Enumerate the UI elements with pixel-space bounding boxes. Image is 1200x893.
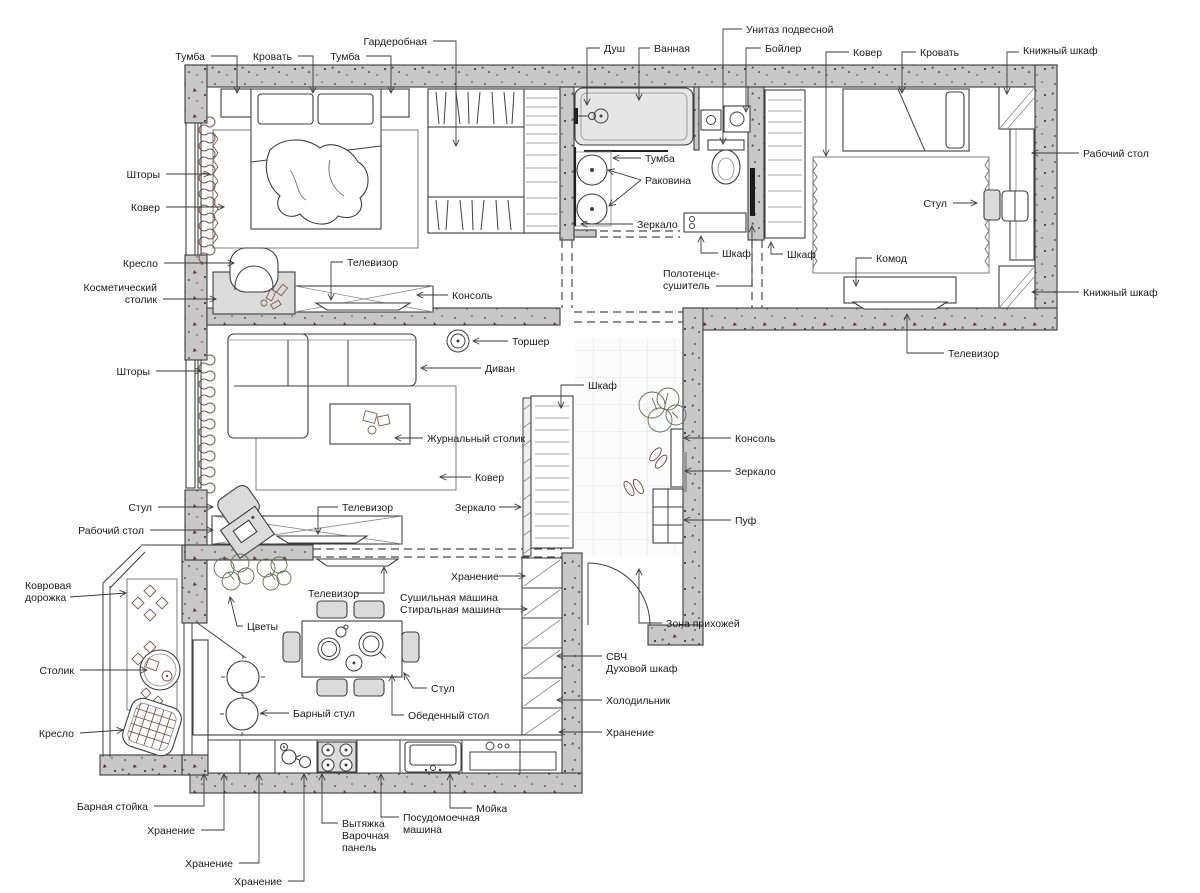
leader-line-flowers <box>230 597 243 626</box>
plan-label-vanity-b1: Косметическийстолик <box>84 282 158 306</box>
plan-label-storage-k1: Хранение <box>451 571 499 583</box>
plan-label-chair-balc: Кресло <box>39 728 74 740</box>
plan-label-cabinet-bath: Шкаф <box>722 248 751 260</box>
storage-column <box>522 558 562 737</box>
wall-left-a <box>185 65 207 123</box>
plan-label-rug-b2: Ковер <box>853 47 882 59</box>
runner-shape <box>127 579 177 710</box>
wardrobe-room <box>428 89 560 233</box>
plan-label-toilet: Унитаз подвесной <box>746 24 834 36</box>
plan-label-console-b1: Консоль <box>452 290 493 302</box>
plan-label-dining-table: Обеденный стол <box>408 710 489 722</box>
window-living <box>186 360 195 488</box>
kitchen-dining <box>193 554 562 773</box>
plan-label-rug-lv: Ковер <box>475 472 504 484</box>
plan-label-nightstand-right-b1: Тумба <box>330 51 360 63</box>
plan-label-chair-b2: Стул <box>923 198 947 210</box>
balcony <box>103 545 192 759</box>
plan-label-sink-bath: Раковина <box>645 175 691 187</box>
plan-label-storage-2: Хранение <box>185 858 233 870</box>
plan-label-closet-hall: Шкаф <box>588 380 617 392</box>
hall-mirror-icon <box>683 452 687 492</box>
plan-label-shower: Душ <box>604 43 625 55</box>
dining-set <box>283 601 419 696</box>
chair-bedroom2 <box>984 190 1028 221</box>
dining-table-shape <box>302 621 402 677</box>
plan-label-curtains-lv: Шторы <box>116 366 150 378</box>
leader-line-chair-dining <box>404 673 427 688</box>
pouf-shape <box>653 489 683 543</box>
wall-bath-left <box>560 87 574 240</box>
plan-label-mirror-lv: Зеркало <box>455 502 496 514</box>
nightstand-left <box>221 89 251 117</box>
plan-label-micro-oven: СВЧДуховой шкаф <box>606 651 678 675</box>
dresser-bedroom2-shape <box>844 277 956 303</box>
bookcase-bottom-icon <box>999 266 1035 308</box>
sink-icon <box>405 742 461 772</box>
bar-stools <box>220 655 265 736</box>
bathtub-shape <box>575 88 693 145</box>
floor-lamp-icon <box>447 330 469 352</box>
dining-chair <box>402 632 419 662</box>
plan-label-dishwasher: Посудомоечнаямашина <box>403 812 480 836</box>
rug-fringe-icon <box>213 132 218 244</box>
plan-label-bookcase-top-b2: Книжный шкаф <box>1023 45 1098 57</box>
leader-line-sink-bath <box>608 170 641 180</box>
wall-wing-bottom <box>683 308 1057 330</box>
bar-counter-shape <box>193 640 208 735</box>
plan-label-runner-balc: Ковроваядорожка <box>25 580 71 604</box>
plan-label-washer-dryer: Сушильная машинаСтиральная машина <box>400 592 501 616</box>
kitchen-counter <box>208 735 562 773</box>
plan-label-tv-kitchen: Телевизор <box>308 588 359 600</box>
plan-label-tv-lv: Телевизор <box>342 502 393 514</box>
plan-label-desk-b2: Рабочий стол <box>1083 148 1149 160</box>
plan-label-storage-3: Хранение <box>234 876 282 888</box>
dining-chair <box>317 601 347 618</box>
plan-label-bed-b2: Кровать <box>920 47 960 59</box>
nightstand-right <box>379 89 409 117</box>
leader-line-sink-bath <box>609 180 641 206</box>
plan-label-tv-b1: Телевизор <box>347 257 398 269</box>
plan-label-coffee-table: Журнальный столик <box>427 433 525 445</box>
armchair-bedroom1 <box>230 248 278 292</box>
floor-plan: ТумбаКроватьТумбаГардеробнаяДушВаннаяУни… <box>0 0 1200 893</box>
bath-appliance-icon <box>701 110 721 130</box>
plan-label-chair-dining: Стул <box>431 683 455 695</box>
wall-bath-bottom-stub <box>574 230 596 237</box>
plan-label-sink-kitchen: Мойка <box>476 803 507 815</box>
plan-label-entry-zone: Зона прихожей <box>666 618 740 630</box>
closet-column <box>765 90 805 238</box>
toilet-icon <box>708 140 744 184</box>
bookcase-top-icon <box>999 87 1035 129</box>
plan-label-rug-b1: Ковер <box>131 202 160 214</box>
plan-label-mirror-hall: Зеркало <box>735 466 776 478</box>
hob-icon <box>318 742 356 772</box>
dining-chair <box>317 679 347 696</box>
entry-door-icon <box>588 563 650 625</box>
plan-label-boiler: Бойлер <box>765 43 802 55</box>
plan-label-wardrobe: Гардеробная <box>363 36 427 48</box>
plan-label-floor-lamp: Торшер <box>512 336 550 348</box>
tv-bedroom2-icon <box>853 302 947 309</box>
plan-label-fridge: Холодильник <box>606 695 671 707</box>
leader-line-dining-table <box>392 675 404 715</box>
plan-label-vanity-bath: Тумба <box>645 153 675 165</box>
plan-label-bookcase-bottom-b2: Книжный шкаф <box>1083 287 1158 299</box>
leader-line-chair-balc <box>80 730 123 733</box>
plan-label-table-balc: Столик <box>40 665 75 677</box>
bed-bedroom2 <box>843 89 969 151</box>
plan-label-dresser-b2: Комод <box>876 253 907 265</box>
window-bedroom1 <box>186 123 195 255</box>
leader-line-closet-b2 <box>771 242 783 254</box>
tv-kitchen-icon <box>317 559 398 566</box>
desk-bedroom2 <box>1010 116 1034 260</box>
wall-top <box>185 65 1057 87</box>
leader-line-cabinet-bath <box>701 236 718 253</box>
wall-kitchen-bottom <box>190 773 582 793</box>
dining-chair <box>354 679 384 696</box>
window-living-inner <box>198 360 201 488</box>
mirror-living-shape <box>523 398 531 556</box>
tv-living-icon <box>277 536 367 543</box>
plan-label-mirror-bath: Зеркало <box>637 219 678 231</box>
plan-label-console-hall: Консоль <box>735 433 776 445</box>
plan-label-desk-lv: Рабочий стол <box>78 525 144 537</box>
plan-label-bathtub: Ванная <box>654 43 690 55</box>
hall-closet-shape <box>531 396 573 548</box>
leader-line-tv-kitchen <box>356 567 384 593</box>
plan-label-sofa: Диван <box>485 363 515 375</box>
plan-label-storage-1: Хранение <box>147 825 195 837</box>
hall-console-shape <box>671 429 683 487</box>
plan-label-bed-b1: Кровать <box>253 51 293 63</box>
plan-label-bar-counter: Барная стойка <box>77 801 148 813</box>
plan-label-curtains-b1: Шторы <box>126 169 160 181</box>
plan-label-hood-hob: ВытяжкаВарочнаяпанель <box>342 818 389 854</box>
bed-bedroom1 <box>251 89 381 229</box>
plan-label-closet-b2: Шкаф <box>787 249 816 261</box>
leader-line-runner-balc <box>70 593 126 597</box>
plan-label-flowers: Цветы <box>247 621 278 633</box>
plan-label-storage-k2: Хранение <box>606 727 654 739</box>
wall-kitchen-left-lower <box>182 755 208 775</box>
wall-left-b <box>185 255 207 360</box>
dining-chair <box>283 632 300 662</box>
wall-bath-divider <box>694 87 699 150</box>
dining-chair <box>354 601 384 618</box>
plan-label-tv-b2: Телевизор <box>948 348 999 360</box>
plan-label-armchair-b1: Кресло <box>123 258 158 270</box>
plan-label-chair-lv: Стул <box>128 502 152 514</box>
wall-right <box>1035 65 1057 330</box>
towel-dryer-icon <box>750 168 755 216</box>
wicker-chair-shape <box>120 695 185 759</box>
plan-label-nightstand-left-b1: Тумба <box>175 51 205 63</box>
wall-balcony-bottom <box>100 755 190 775</box>
tv-bedroom1-icon <box>316 303 410 310</box>
bedroom1 <box>213 89 433 314</box>
tv-console-bedroom1 <box>295 286 433 312</box>
plan-label-pouf: Пуф <box>735 515 757 527</box>
wall-kitchen-right <box>562 553 582 793</box>
bath-cabinet <box>684 213 746 232</box>
plan-label-towel-dryer: Полотенце-сушитель <box>663 268 720 292</box>
plan-label-bar-stool: Барный стул <box>293 708 355 720</box>
